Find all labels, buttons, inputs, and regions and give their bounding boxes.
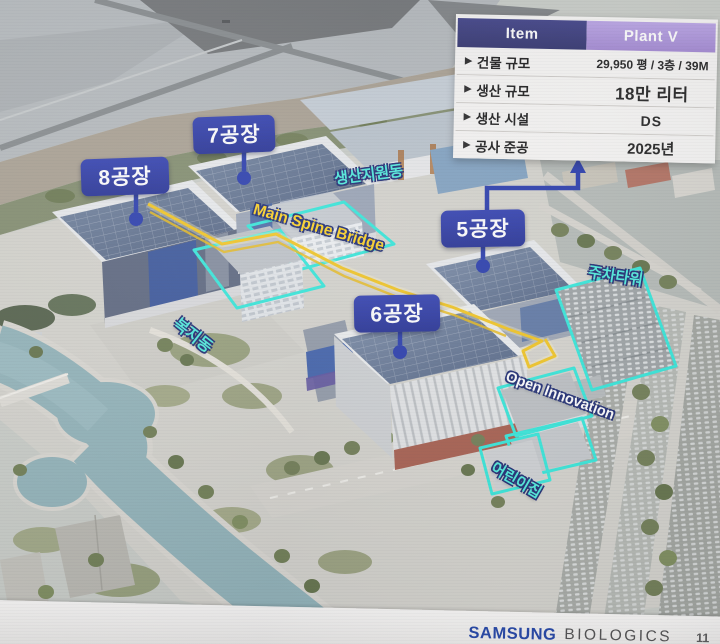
label-plant-7: 7공장 (192, 115, 275, 155)
row-item-label: 생산 시설 (476, 107, 530, 128)
label-plant-5: 5공장 (441, 209, 526, 247)
slide-photo: 8공장 7공장 5공장 6공장 생산지원동 Main Spine Bridge … (0, 0, 720, 644)
label-plant-6: 6공장 (354, 294, 441, 332)
row-marker-icon: ▶ (463, 139, 470, 150)
row-value: 18만 리터 (589, 78, 715, 108)
row-value: 2025년 (588, 134, 714, 164)
row-value: DS (589, 106, 715, 136)
plant7-pointer-dot (237, 171, 251, 185)
label-plant-8: 8공장 (80, 156, 169, 196)
row-marker-icon: ▶ (464, 111, 471, 122)
row-item-label: 공사 준공 (475, 135, 529, 156)
table-header-item: Item (457, 18, 587, 50)
plant5-pointer-dot (476, 259, 490, 273)
plant-info-table: Item Plant V ▶건물 규모 29,950 평 / 3층 / 39M … (453, 14, 718, 163)
row-item-label: 건물 규모 (477, 51, 531, 72)
table-row: ▶공사 준공 2025년 (455, 131, 714, 163)
row-item-label: 생산 규모 (476, 79, 530, 100)
table-header-plant: Plant V (586, 21, 716, 53)
page-number: 11 (696, 631, 710, 644)
samsung-logo: SAMSUNG (468, 623, 556, 644)
plant8-pointer-dot (129, 212, 143, 226)
plant6-pointer-dot (393, 345, 407, 359)
row-marker-icon: ▶ (465, 55, 472, 66)
biologics-logo: BIOLOGICS (564, 626, 672, 644)
row-value: 29,950 평 / 3층 / 39M (590, 50, 716, 80)
row-marker-icon: ▶ (464, 83, 471, 94)
